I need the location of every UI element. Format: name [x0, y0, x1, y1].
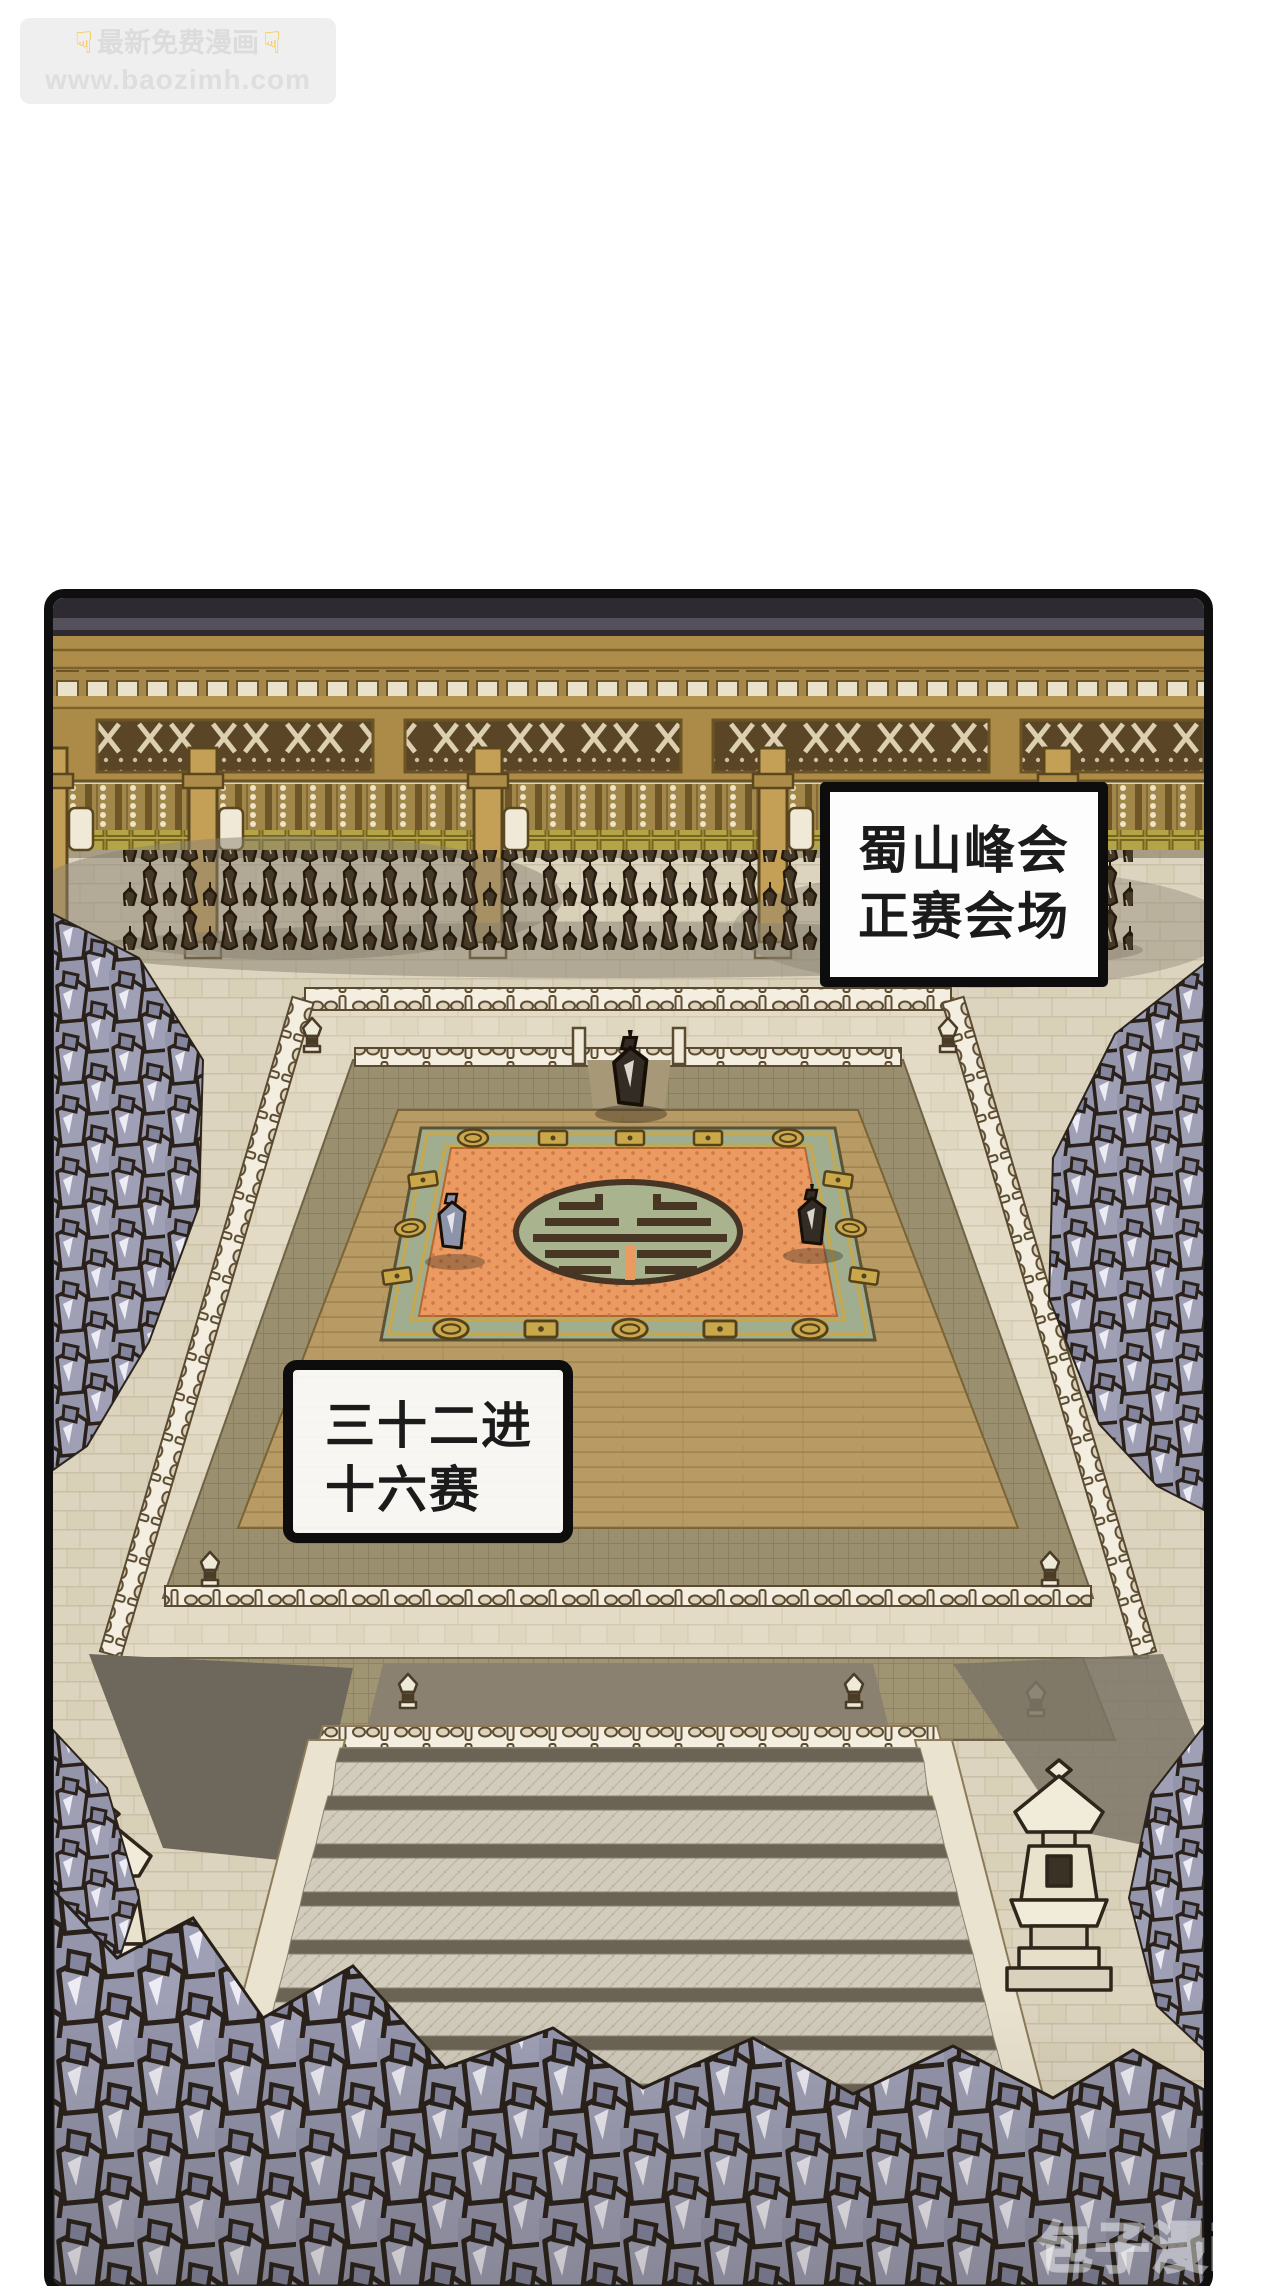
comic-reader-page: ☟ 最新免费漫画 ☟ www.baozimh.com: [0, 0, 1280, 2286]
publisher-logo-watermark: 包子漫画: [1038, 2204, 1266, 2283]
caption-box-venue: 蜀山峰会 正赛会场: [820, 782, 1108, 987]
caption-round-line2: 十六赛: [325, 1458, 563, 1522]
caption-venue-line1: 蜀山峰会: [858, 818, 1098, 884]
caption-round-line1: 三十二进: [325, 1394, 563, 1458]
site-watermark-line1: ☟ 最新免费漫画 ☟: [75, 25, 282, 63]
site-watermark: ☟ 最新免费漫画 ☟ www.baozimh.com: [20, 18, 336, 104]
hand-down-icon: ☟: [263, 25, 281, 63]
caption-box-round: 三十二进 十六赛: [283, 1360, 573, 1543]
site-watermark-text: 最新免费漫画: [97, 27, 259, 61]
caption-venue-line2: 正赛会场: [858, 884, 1098, 950]
site-watermark-url: www.baozimh.com: [45, 62, 311, 97]
hand-down-icon: ☟: [75, 25, 93, 63]
longevity-emblem: [516, 1182, 740, 1282]
